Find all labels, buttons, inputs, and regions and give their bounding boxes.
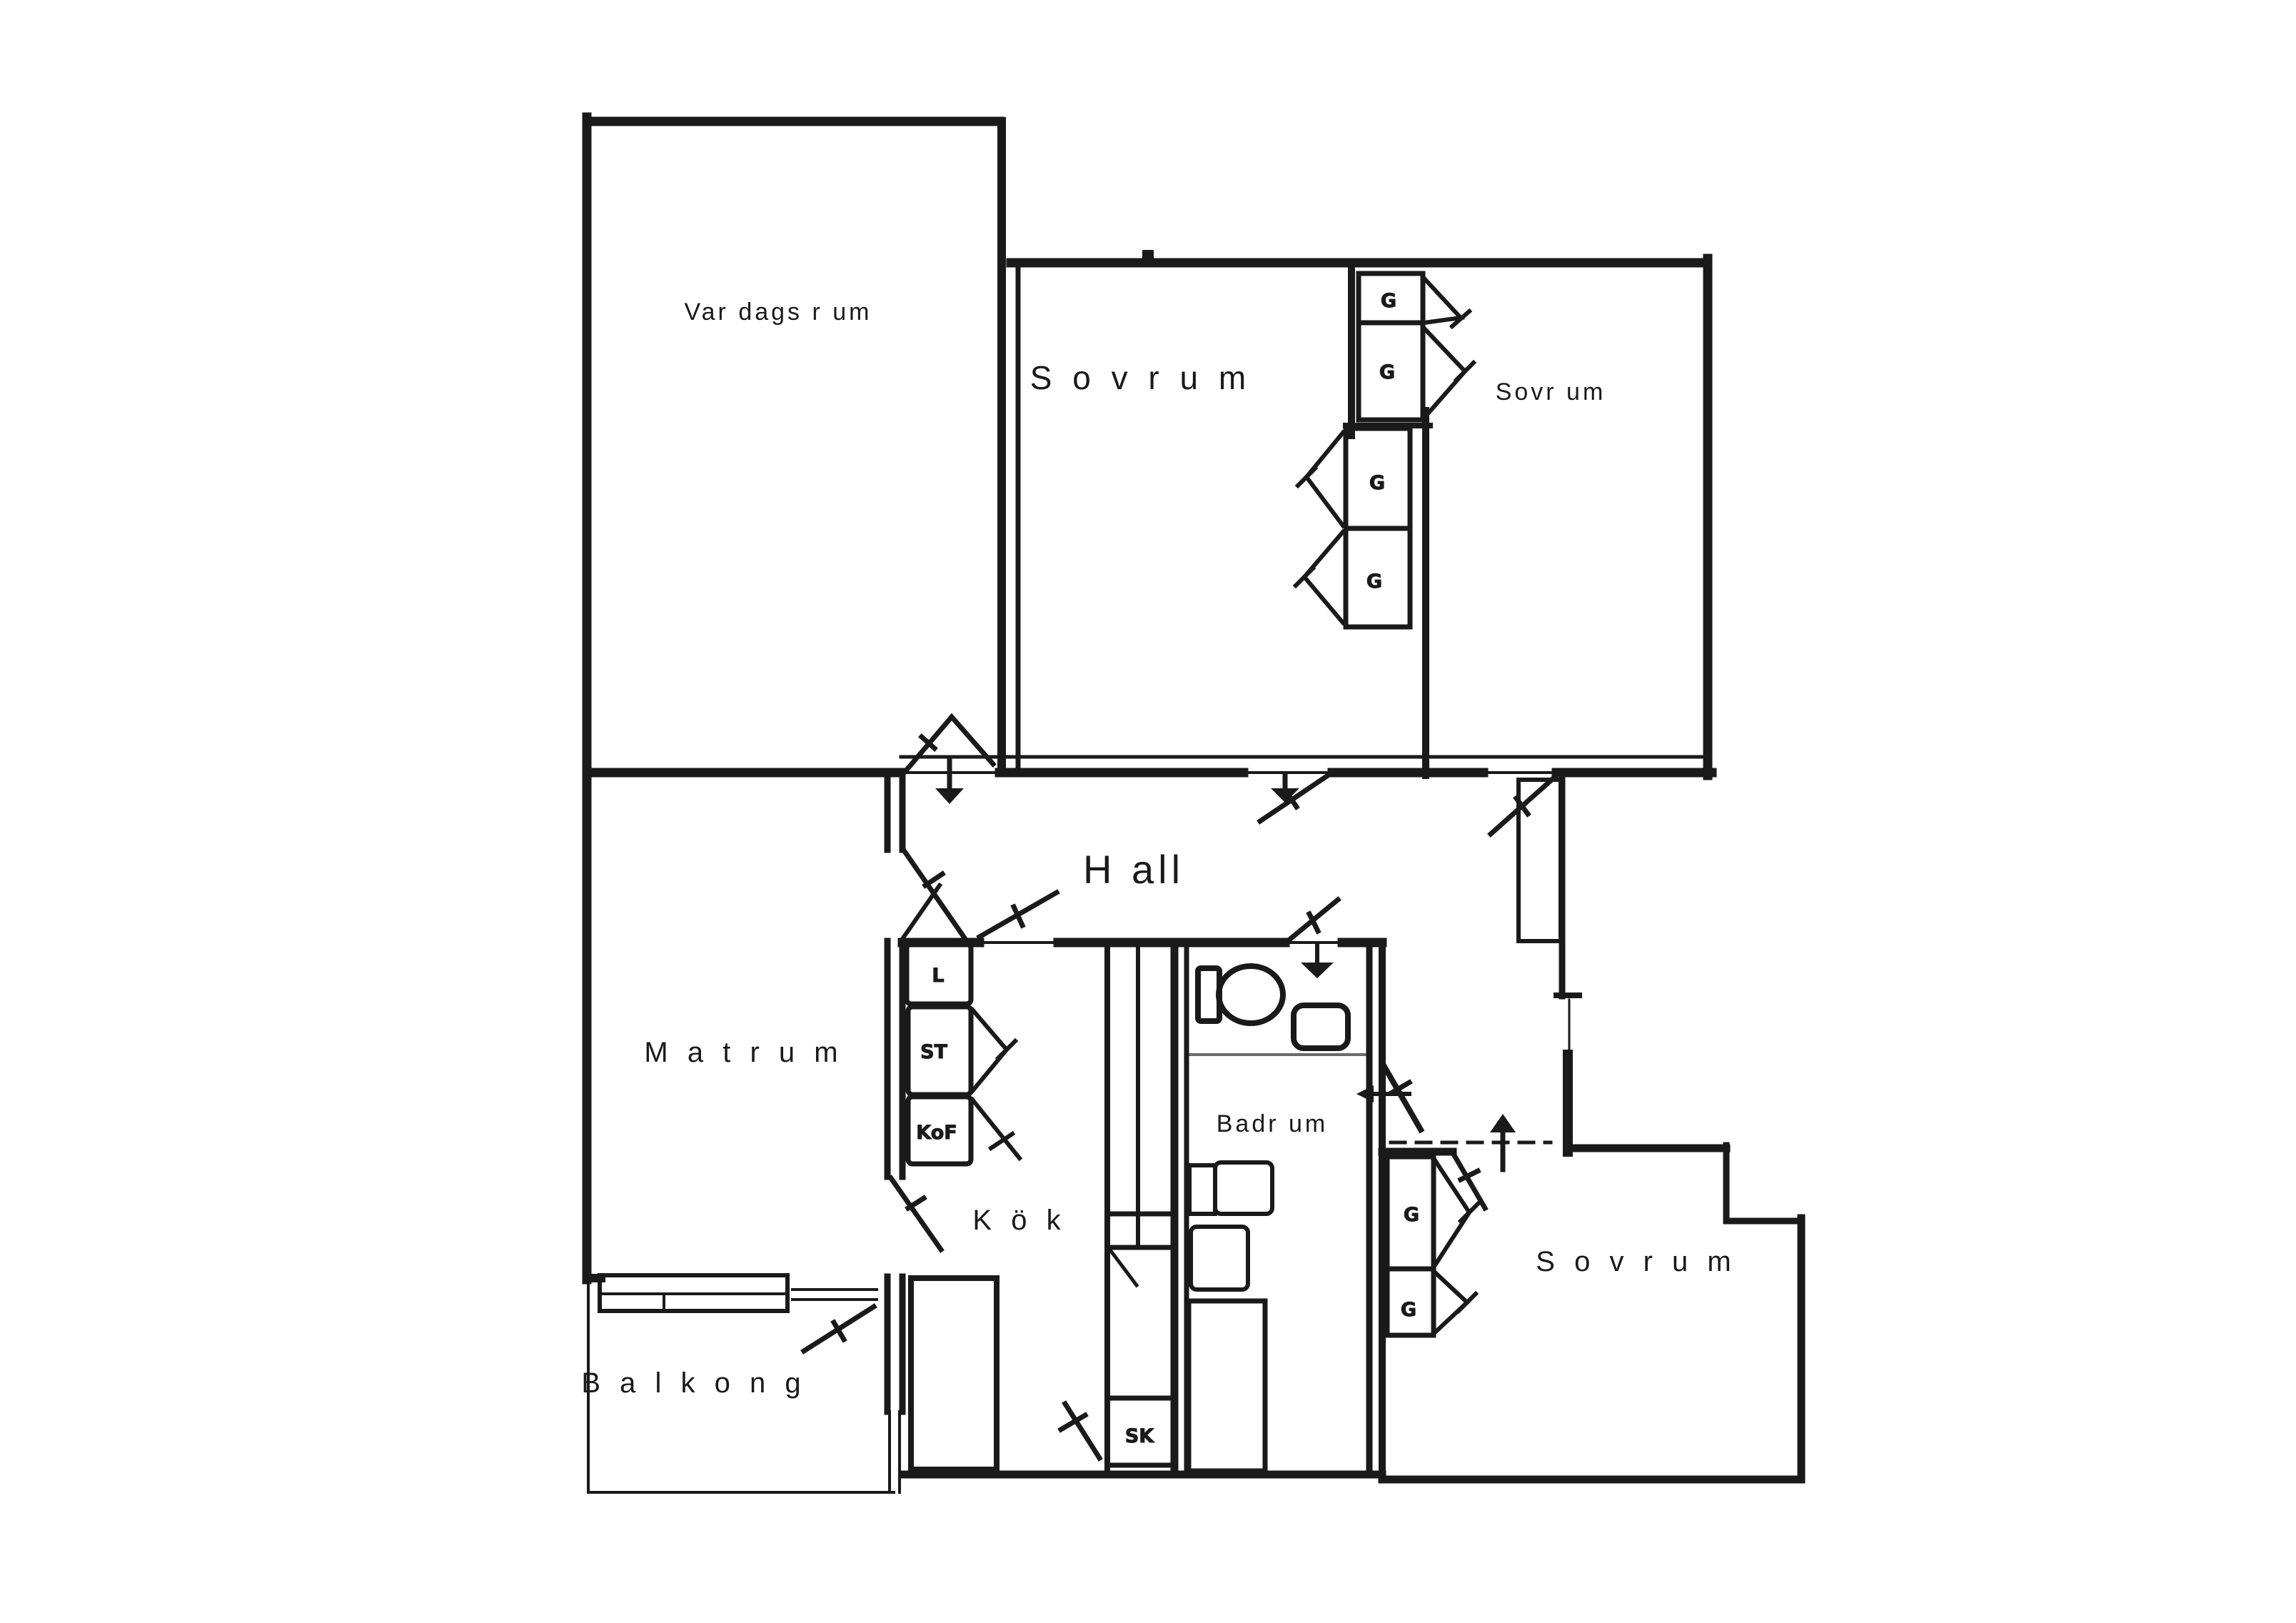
entry-door-swing [1384, 1065, 1421, 1130]
closet-label: SK [1125, 1425, 1154, 1447]
left-arrow-icon [1356, 1085, 1374, 1102]
bedroom-mid-door-swing [1260, 775, 1328, 821]
room-label-balkong: B a l k o n g [581, 1367, 806, 1399]
door-direction-arrow-icon [935, 788, 964, 804]
laundry-unit [1189, 1165, 1215, 1214]
closet-label: G [1366, 571, 1382, 593]
closet-label: L [932, 965, 944, 987]
matrum-kitchen-door-swing [891, 1178, 941, 1250]
door-direction-arrow-icon [1301, 963, 1334, 978]
dryer [1191, 1227, 1248, 1290]
doors [804, 717, 1555, 1458]
kitchen-bottom-door-swing [1065, 1404, 1099, 1458]
sink-mark [1111, 1251, 1137, 1285]
room-label-matrum: M a t r u m [644, 1037, 843, 1068]
closet-label: G [1404, 1204, 1419, 1226]
room-label-sovrum-right: Sovr um [1496, 378, 1606, 406]
room-label-vardagsrum: Var dags r um [684, 298, 872, 326]
room-label-kok: K ö k [972, 1205, 1066, 1236]
room-label-sovrum-top: S o v r u m [1030, 359, 1252, 396]
closet-label: G [1369, 472, 1385, 494]
closet-label: KoF [916, 1122, 957, 1144]
closet-label: ST [920, 1041, 947, 1063]
toilet-bowl [1219, 966, 1283, 1023]
closet-label: G [1401, 1299, 1416, 1321]
closet-label: G [1381, 290, 1396, 312]
room-label-hall: H all [1083, 847, 1184, 892]
windows [600, 1275, 877, 1311]
washing-machine [1215, 1162, 1272, 1214]
floor-plan: G G G G L ST KoF G G SK [0, 0, 2296, 1623]
shower-unit [1189, 1301, 1265, 1471]
closet-label: G [1379, 361, 1395, 383]
bathroom-sink [1294, 1005, 1348, 1048]
entry-arrow-icon [1490, 1114, 1516, 1132]
kitchen-cabinet [911, 1278, 997, 1469]
room-label-sovrum-bottom: S o v r u m [1536, 1246, 1736, 1277]
floor-plan-drawing: G G G G L ST KoF G G SK [0, 0, 2296, 1623]
room-label-badrum: Badr um [1217, 1110, 1329, 1137]
